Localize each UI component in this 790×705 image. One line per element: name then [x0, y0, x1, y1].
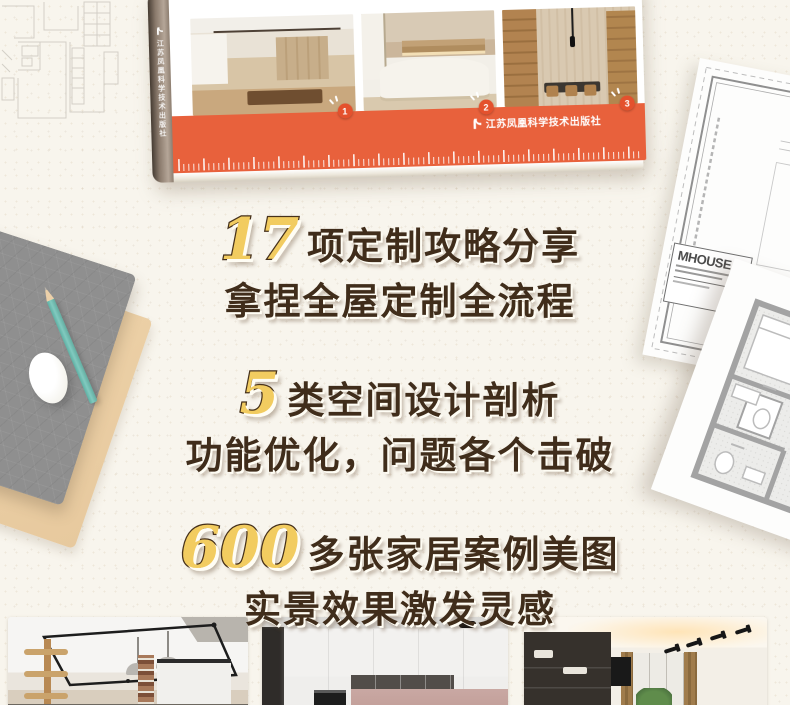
cover-photo-living-room: 1	[190, 14, 355, 116]
badge-number: 2	[483, 102, 488, 112]
highlight-line: 17项定制攻略分享	[115, 216, 685, 278]
highlight-text: 类空间设计剖析	[287, 379, 560, 422]
badge-number: 3	[625, 98, 630, 108]
publisher-lockup: 江苏凤凰科学技术出版社	[470, 112, 602, 131]
bed	[379, 56, 489, 99]
promo-page: MHOUSE	[0, 0, 790, 705]
curtain-right	[684, 652, 696, 705]
window-wall	[191, 33, 228, 84]
highlight-line: 功能优化，问题各个击破	[115, 432, 685, 487]
green-plant	[636, 688, 672, 705]
highlight-block-2: 5类空间设计剖析 功能优化，问题各个击破	[115, 370, 685, 487]
cat-tree-platform	[24, 649, 68, 655]
highlight-line: 5类空间设计剖析	[115, 370, 685, 432]
highlight-line: 600多张家居案例美图	[115, 524, 685, 586]
cover-photo-row: 1 2	[169, 6, 645, 116]
highlight-block-3: 600多张家居案例美图 实景效果激发灵感	[115, 524, 685, 641]
track-light	[213, 27, 340, 33]
pendant-lamp	[570, 36, 575, 47]
book-mockup: 江苏凤凰科学技术出版社 1	[147, 0, 646, 183]
phoenix-logo-icon	[470, 117, 482, 129]
pendant-cord	[571, 8, 574, 37]
highlight-number: 600	[181, 514, 300, 581]
bookshelf-left	[502, 9, 539, 107]
highlight-block-1: 17项定制攻略分享 拿捏全屋定制全流程	[115, 216, 685, 333]
highlight-line: 实景效果激发灵感	[115, 586, 685, 641]
headline-column: 17项定制攻略分享 拿捏全屋定制全流程 5类空间设计剖析 功能优化，问题各个击破…	[115, 216, 685, 678]
highlight-text: 拿捏全屋定制全流程	[225, 280, 576, 323]
highlight-line: 拿捏全屋定制全流程	[115, 278, 685, 333]
highlight-number: 17	[220, 206, 299, 273]
cat-tree-platform	[24, 671, 68, 677]
photo-badge-2: 2	[478, 99, 493, 114]
headboard-niche	[401, 39, 485, 56]
bookshelf-right	[606, 10, 638, 104]
dining-table	[247, 89, 322, 106]
highlight-number: 5	[240, 360, 280, 427]
highlight-text: 项定制攻略分享	[307, 225, 580, 268]
cover-photo-bedroom: 2	[361, 10, 497, 111]
cat-tree-platform	[24, 693, 68, 699]
chair	[547, 85, 559, 97]
spine-publisher: 江苏凤凰科学技术出版社	[154, 39, 167, 138]
cover-photo-study: 3	[502, 6, 638, 107]
highlight-text: 实景效果激发灵感	[244, 588, 556, 631]
phoenix-logo-icon	[154, 27, 163, 36]
highlight-text: 多张家居案例美图	[307, 533, 619, 576]
chair	[565, 85, 577, 97]
pink-backsplash	[351, 689, 508, 705]
highlight-text: 功能优化，问题各个击破	[186, 434, 615, 477]
photo-badge-1: 1	[337, 103, 352, 118]
wood-cabinet	[275, 36, 328, 80]
publisher-name: 江苏凤凰科学技术出版社	[485, 112, 601, 130]
built-in-oven	[314, 690, 346, 705]
chair	[584, 84, 596, 96]
book-cover: 1 2	[168, 0, 646, 173]
apartment-sketch	[0, 0, 152, 130]
badge-number: 1	[342, 106, 347, 116]
